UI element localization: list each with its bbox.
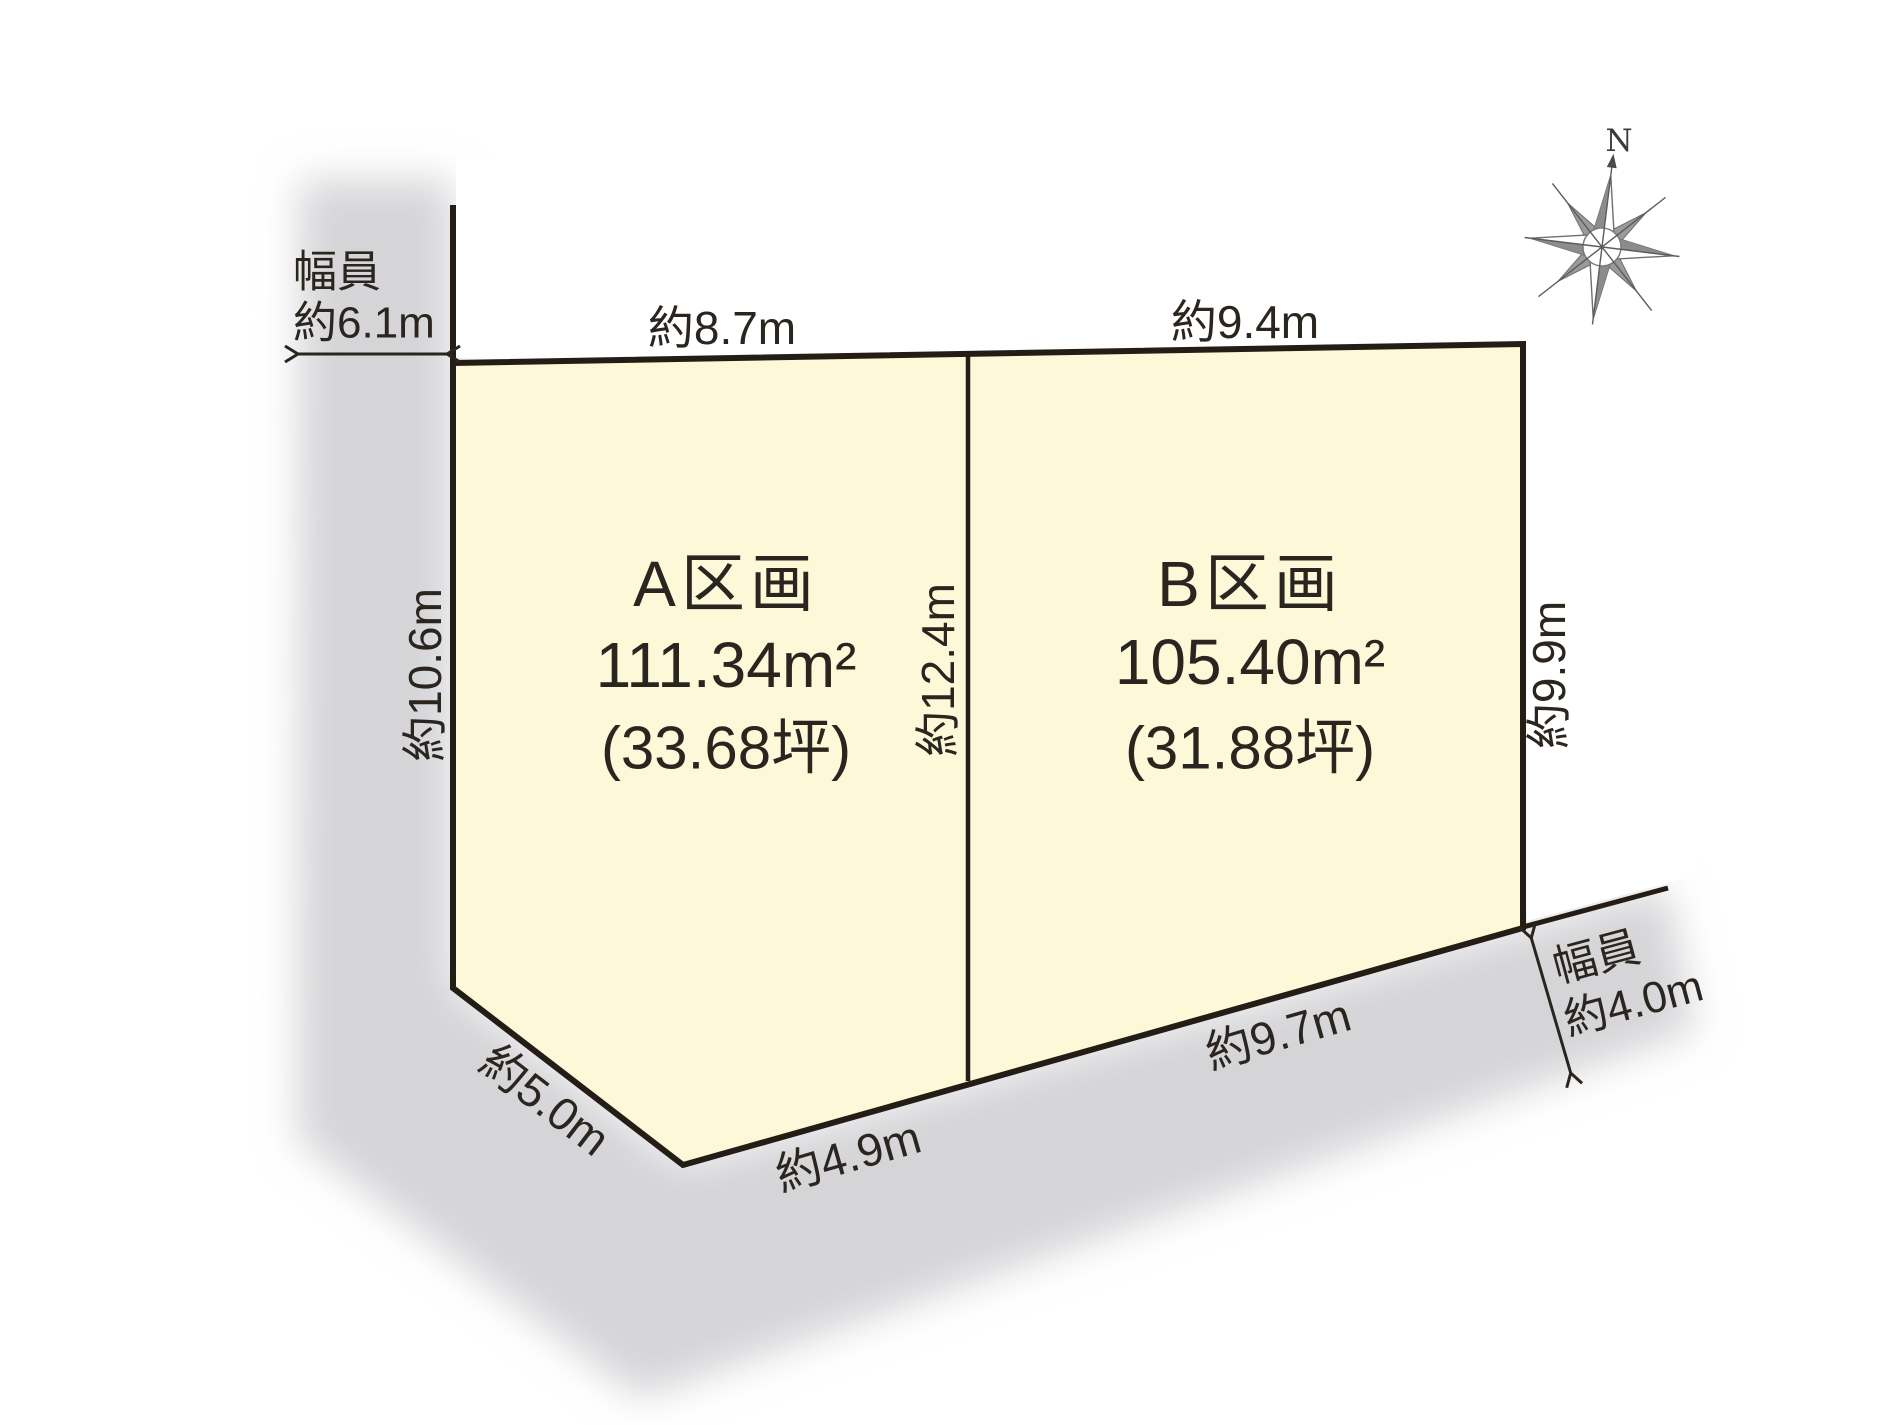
site-plan-svg: 約8.7m 約9.4m 約10.6m 約12.4m 約9.9m 約5.0m 約4… [0, 0, 1900, 1425]
compass-spokes [1515, 152, 1690, 334]
road-width-label-left-line1: 幅員 [293, 248, 381, 297]
compass-icon [1514, 144, 1692, 335]
dim-parcel-b-top: 約9.4m [1171, 296, 1319, 348]
white-patch-top-left [456, 160, 528, 358]
north-label: N [1605, 123, 1632, 159]
parcel-b-name: B区画 [1157, 548, 1343, 620]
parcel-a-area-tsubo: (33.68坪) [601, 715, 851, 782]
road-width-label-left-line2: 約6.1m [293, 299, 435, 348]
parcel-a-area-sqm: 111.34m² [596, 629, 857, 701]
dim-right-side: 約9.9m [1523, 601, 1575, 749]
parcel-b-area-sqm: 105.40m² [1115, 626, 1385, 698]
parcel-b-area-tsubo: (31.88坪) [1125, 715, 1375, 782]
parcel-a-name: A区画 [633, 548, 819, 620]
parcel-a-label: A区画 111.34m² (33.68坪) [596, 548, 857, 782]
dim-divider: 約12.4m [912, 583, 964, 757]
dim-parcel-a-top: 約8.7m [648, 302, 796, 354]
dim-left-side: 約10.6m [399, 588, 451, 762]
site-plan: 約8.7m 約9.4m 約10.6m 約12.4m 約9.9m 約5.0m 約4… [0, 0, 1900, 1425]
